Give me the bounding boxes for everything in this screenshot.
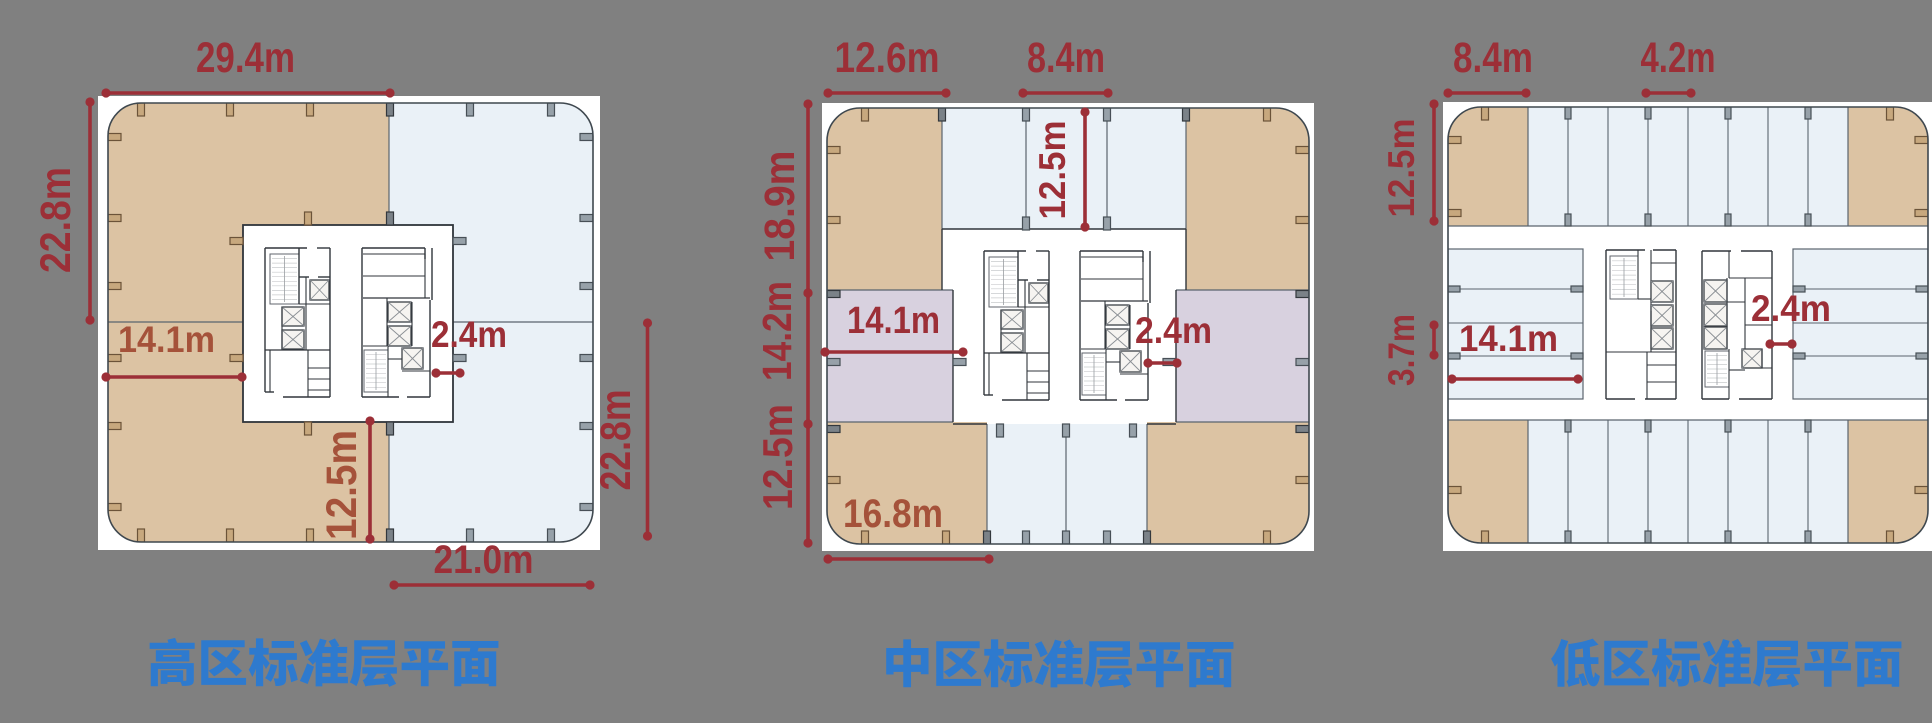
svg-text:22.8m: 22.8m <box>592 390 640 491</box>
svg-text:8.4m: 8.4m <box>1027 34 1105 82</box>
svg-text:12.5m: 12.5m <box>1381 119 1422 218</box>
svg-text:14.2m: 14.2m <box>754 281 800 381</box>
svg-text:18.9m: 18.9m <box>756 151 804 262</box>
svg-text:4.2m: 4.2m <box>1641 34 1716 82</box>
svg-text:14.1m: 14.1m <box>118 319 215 360</box>
svg-text:12.5m: 12.5m <box>318 430 366 540</box>
svg-text:3.7m: 3.7m <box>1381 314 1422 386</box>
svg-text:14.1m: 14.1m <box>1459 318 1558 359</box>
svg-text:14.1m: 14.1m <box>847 300 940 342</box>
svg-text:16.8m: 16.8m <box>843 492 943 536</box>
svg-text:12.6m: 12.6m <box>835 34 940 82</box>
svg-text:8.4m: 8.4m <box>1453 34 1533 82</box>
svg-text:29.4m: 29.4m <box>196 34 295 82</box>
svg-text:2.4m: 2.4m <box>1751 288 1831 329</box>
svg-text:2.4m: 2.4m <box>431 314 507 355</box>
svg-text:2.4m: 2.4m <box>1135 310 1212 351</box>
svg-text:22.8m: 22.8m <box>32 167 80 273</box>
svg-text:21.0m: 21.0m <box>434 538 534 582</box>
svg-text:12.5m: 12.5m <box>1032 121 1073 220</box>
svg-text:12.5m: 12.5m <box>754 404 801 510</box>
